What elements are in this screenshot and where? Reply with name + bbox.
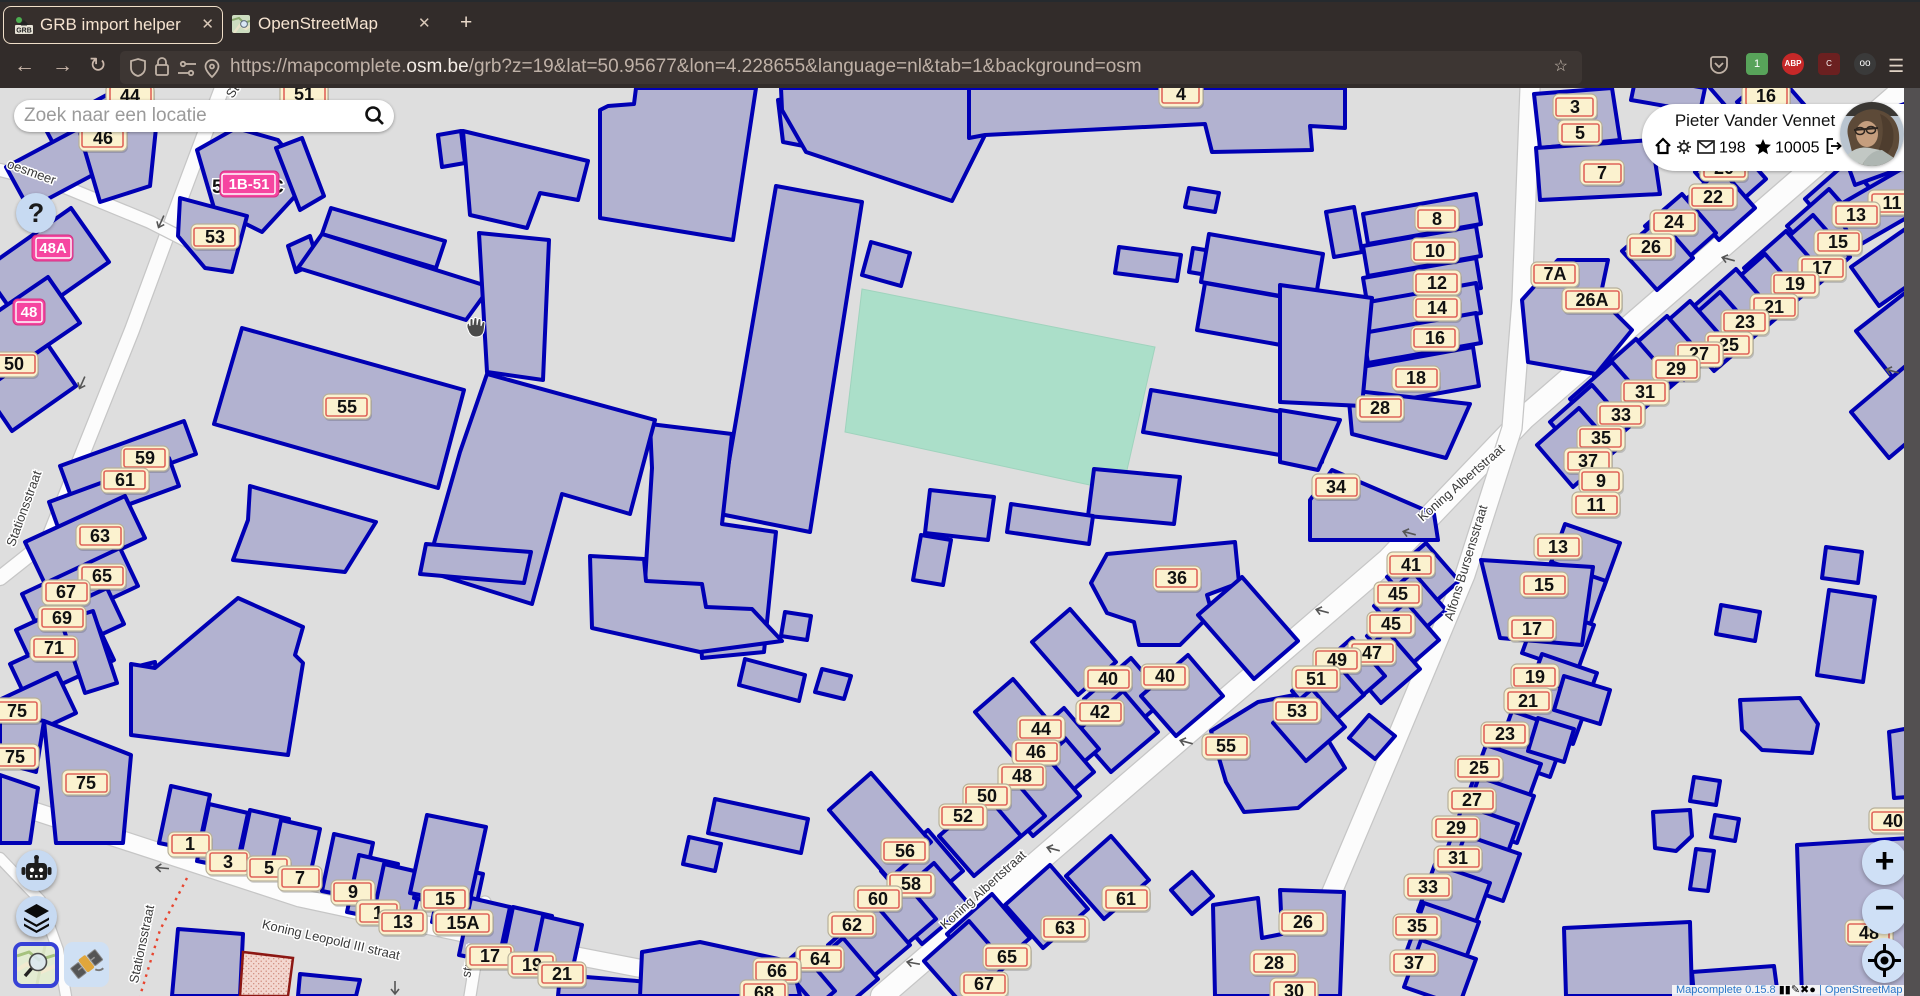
- svg-text:58: 58: [901, 874, 921, 894]
- svg-text:7: 7: [1597, 163, 1607, 183]
- svg-text:11: 11: [1882, 193, 1901, 213]
- svg-text:15: 15: [1534, 575, 1554, 595]
- svg-text:23: 23: [1495, 724, 1515, 744]
- svg-text:28: 28: [1370, 398, 1390, 418]
- svg-text:67: 67: [56, 582, 76, 602]
- svg-text:67: 67: [974, 974, 994, 994]
- svg-text:26A: 26A: [1575, 290, 1608, 310]
- svg-text:61: 61: [115, 470, 135, 490]
- svg-text:29: 29: [1446, 818, 1466, 838]
- svg-text:40: 40: [1883, 811, 1903, 831]
- svg-text:56: 56: [895, 841, 915, 861]
- svg-text:14: 14: [1427, 298, 1447, 318]
- svg-text:13: 13: [393, 912, 413, 932]
- svg-text:68: 68: [754, 983, 774, 996]
- svg-text:9: 9: [1596, 471, 1606, 491]
- svg-text:40: 40: [1098, 669, 1118, 689]
- svg-text:75: 75: [5, 747, 25, 767]
- svg-text:65: 65: [92, 566, 112, 586]
- svg-text:44: 44: [1031, 719, 1051, 739]
- svg-text:36: 36: [1167, 568, 1187, 588]
- svg-text:25: 25: [1469, 758, 1489, 778]
- svg-text:22: 22: [1703, 187, 1723, 207]
- svg-text:34: 34: [1326, 477, 1346, 497]
- svg-text:10: 10: [1425, 241, 1445, 261]
- svg-text:45: 45: [1381, 614, 1401, 634]
- svg-text:29: 29: [1666, 359, 1686, 379]
- svg-text:16: 16: [1425, 328, 1445, 348]
- svg-text:28: 28: [1264, 953, 1284, 973]
- svg-text:3: 3: [223, 852, 233, 872]
- svg-text:1: 1: [185, 834, 195, 854]
- svg-text:9: 9: [348, 882, 358, 902]
- svg-text:17: 17: [1522, 619, 1542, 639]
- svg-text:48: 48: [1012, 766, 1032, 786]
- svg-text:23: 23: [1735, 312, 1755, 332]
- svg-text:69: 69: [52, 608, 72, 628]
- svg-text:13: 13: [1548, 537, 1568, 557]
- svg-text:15: 15: [435, 889, 455, 909]
- svg-text:8: 8: [1432, 209, 1442, 229]
- svg-text:62: 62: [842, 915, 862, 935]
- svg-text:35: 35: [1407, 916, 1427, 936]
- svg-text:64: 64: [810, 949, 830, 969]
- svg-text:1B-51: 1B-51: [229, 176, 270, 193]
- svg-text:26: 26: [1641, 237, 1661, 257]
- svg-text:5: 5: [264, 858, 274, 878]
- svg-text:45: 45: [1388, 584, 1408, 604]
- svg-text:15: 15: [1828, 232, 1848, 252]
- svg-text:31: 31: [1635, 382, 1655, 402]
- svg-text:51: 51: [1306, 669, 1326, 689]
- svg-text:53: 53: [1287, 701, 1307, 721]
- svg-text:19: 19: [1785, 274, 1805, 294]
- svg-text:30: 30: [1284, 981, 1304, 996]
- svg-text:21: 21: [552, 964, 572, 984]
- svg-text:63: 63: [90, 526, 110, 546]
- svg-text:198: 198: [1719, 140, 1746, 157]
- svg-text:50: 50: [4, 354, 24, 374]
- svg-text:7: 7: [295, 868, 305, 888]
- svg-text:75: 75: [7, 701, 27, 721]
- svg-text:7A: 7A: [1543, 264, 1566, 284]
- svg-text:33: 33: [1611, 405, 1631, 425]
- svg-text:50: 50: [977, 786, 997, 806]
- svg-text:21: 21: [1518, 691, 1538, 711]
- svg-text:37: 37: [1404, 953, 1424, 973]
- svg-text:15A: 15A: [446, 913, 479, 933]
- svg-text:12: 12: [1427, 273, 1447, 293]
- svg-text:60: 60: [868, 889, 888, 909]
- svg-text:48A: 48A: [39, 240, 67, 257]
- svg-text:31: 31: [1448, 848, 1468, 868]
- svg-text:4: 4: [1176, 88, 1186, 104]
- svg-text:42: 42: [1090, 702, 1110, 722]
- svg-text:3: 3: [1570, 97, 1580, 117]
- svg-text:GRB: GRB: [16, 28, 32, 35]
- svg-text:10005: 10005: [1775, 140, 1820, 157]
- svg-text:13: 13: [1846, 205, 1866, 225]
- svg-text:61: 61: [1116, 889, 1136, 909]
- svg-text:17: 17: [480, 946, 500, 966]
- svg-text:71: 71: [44, 638, 64, 658]
- svg-text:5: 5: [1575, 123, 1585, 143]
- svg-text:75: 75: [76, 773, 96, 793]
- svg-text:66: 66: [767, 961, 787, 981]
- svg-text:11: 11: [1586, 495, 1605, 515]
- svg-text:27: 27: [1462, 790, 1482, 810]
- svg-text:41: 41: [1401, 555, 1421, 575]
- svg-text:55: 55: [337, 397, 357, 417]
- svg-text:65: 65: [997, 947, 1017, 967]
- svg-text:24: 24: [1664, 212, 1684, 232]
- svg-text:46: 46: [1026, 742, 1046, 762]
- svg-text:26: 26: [1293, 912, 1313, 932]
- svg-text:55: 55: [1216, 736, 1236, 756]
- svg-text:63: 63: [1055, 918, 1075, 938]
- svg-text:18: 18: [1406, 368, 1426, 388]
- svg-text:33: 33: [1418, 877, 1438, 897]
- svg-text:35: 35: [1591, 428, 1611, 448]
- svg-text:40: 40: [1155, 666, 1175, 686]
- svg-text:59: 59: [135, 448, 155, 468]
- svg-text:52: 52: [953, 806, 973, 826]
- svg-text:47: 47: [1362, 643, 1382, 663]
- svg-text:53: 53: [205, 227, 225, 247]
- svg-text:19: 19: [1525, 667, 1545, 687]
- svg-text:48: 48: [21, 304, 38, 321]
